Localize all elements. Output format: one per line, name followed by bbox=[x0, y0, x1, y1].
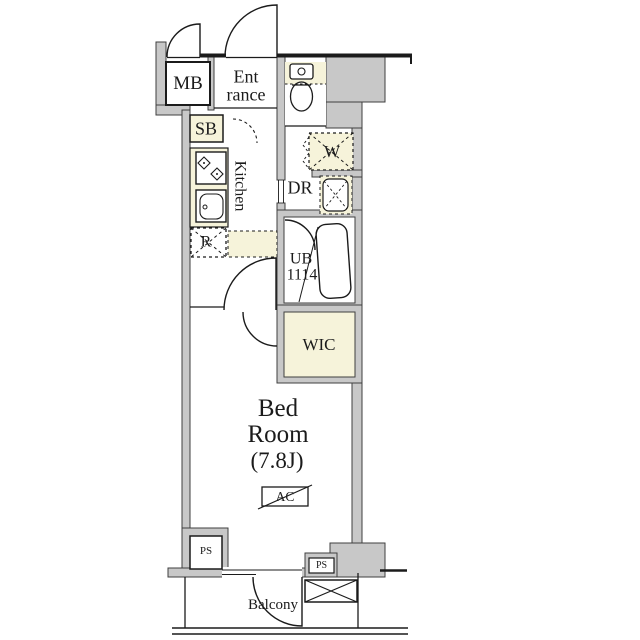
label-ps-right: PS bbox=[316, 560, 327, 571]
wall-bottom-right-block bbox=[330, 543, 385, 577]
stove bbox=[196, 152, 226, 184]
stove-burner-2-dot bbox=[216, 173, 218, 175]
sink-faucet bbox=[203, 205, 207, 209]
stove-burner-1-dot bbox=[203, 162, 205, 164]
label-balcony: Balcony bbox=[248, 598, 298, 614]
label-ps-left: PS bbox=[200, 546, 212, 558]
label-entrance-line2: rance bbox=[227, 86, 266, 105]
wall-left-main bbox=[182, 110, 190, 577]
bathtub bbox=[315, 223, 351, 299]
label-bedroom-line1: Bed bbox=[258, 396, 298, 422]
wall-top-right-step bbox=[326, 102, 362, 128]
label-kitchen: Kitchen bbox=[231, 161, 248, 212]
wall-left-top bbox=[156, 42, 166, 115]
label-ac: AC bbox=[276, 490, 295, 504]
label-refrigerator: R bbox=[201, 235, 212, 252]
label-bedroom-line2: Room bbox=[247, 422, 308, 448]
label-meter-box: MB bbox=[173, 74, 203, 94]
wall-hall-upper bbox=[277, 57, 285, 180]
floor-plan-svg bbox=[0, 0, 640, 640]
label-unit-bath-line2: 1114 bbox=[287, 268, 318, 285]
label-dressing-room: DR bbox=[287, 179, 312, 198]
hall-storage-strip bbox=[228, 231, 277, 257]
balcony-door-gap bbox=[222, 567, 302, 578]
toilet-bowl bbox=[291, 82, 313, 111]
floor-plan: MB Ent rance SB Kitchen DR W R UB 1114 W… bbox=[0, 0, 640, 640]
wall-top-right-block bbox=[326, 57, 385, 102]
label-bedroom-size: (7.8J) bbox=[250, 449, 303, 473]
label-shoe-box: SB bbox=[195, 120, 217, 139]
label-wic: WIC bbox=[302, 336, 335, 354]
toilet-tank-button bbox=[298, 68, 305, 75]
label-washer: W bbox=[324, 143, 340, 161]
